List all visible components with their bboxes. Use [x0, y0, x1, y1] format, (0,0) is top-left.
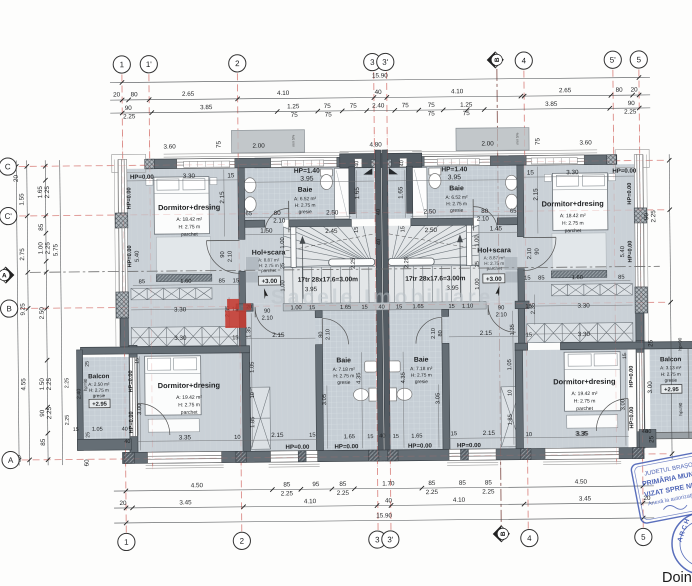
svg-text:9.25: 9.25 — [20, 303, 27, 316]
svg-text:40: 40 — [399, 160, 405, 166]
svg-text:5: 5 — [641, 533, 646, 542]
svg-text:15: 15 — [451, 431, 458, 437]
svg-text:40: 40 — [124, 439, 130, 445]
svg-text:H: 2.75 m: H: 2.75 m — [333, 373, 354, 379]
svg-text:80: 80 — [616, 87, 624, 94]
svg-text:5.40: 5.40 — [620, 246, 626, 257]
svg-text:H: 2.75 m: H: 2.75 m — [178, 402, 200, 408]
svg-text:2.50: 2.50 — [425, 227, 438, 234]
svg-text:1.35: 1.35 — [246, 327, 252, 338]
svg-text:2.25: 2.25 — [46, 407, 53, 420]
svg-text:HP=0.00: HP=0.00 — [629, 407, 635, 429]
svg-text:90: 90 — [264, 309, 271, 315]
svg-text:80: 80 — [438, 330, 444, 336]
svg-text:HP=0.00: HP=0.00 — [126, 187, 132, 209]
svg-text:90: 90 — [498, 305, 505, 311]
svg-text:HP=0.00: HP=0.00 — [408, 443, 433, 450]
svg-text:75: 75 — [216, 141, 223, 149]
svg-text:Balcon: Balcon — [660, 356, 681, 363]
svg-text:HP=0.00: HP=0.00 — [628, 241, 634, 263]
svg-text:Baie: Baie — [414, 357, 429, 364]
svg-text:80: 80 — [481, 208, 489, 215]
svg-text:hp=90: hp=90 — [677, 337, 682, 350]
svg-text:3.45: 3.45 — [579, 495, 592, 502]
svg-text:40: 40 — [122, 426, 128, 432]
svg-text:5': 5' — [610, 56, 617, 65]
svg-text:A: 7.18 m²: A: 7.18 m² — [410, 366, 433, 372]
svg-text:40: 40 — [642, 429, 648, 435]
svg-text:2: 2 — [240, 537, 245, 546]
svg-text:25: 25 — [475, 261, 481, 267]
svg-text:C': C' — [5, 212, 13, 221]
svg-text:75: 75 — [402, 102, 410, 109]
svg-text:15: 15 — [227, 172, 235, 179]
svg-text:1.55: 1.55 — [19, 193, 26, 206]
svg-text:2.15: 2.15 — [532, 188, 539, 201]
svg-text:17tr 28x17.6=3.00m: 17tr 28x17.6=3.00m — [298, 276, 359, 284]
svg-text:4: 4 — [527, 534, 532, 543]
svg-text:85: 85 — [618, 275, 625, 281]
svg-text:90: 90 — [628, 100, 636, 107]
svg-text:2.25: 2.25 — [404, 257, 410, 268]
svg-text:H: 2.75 m: H: 2.75 m — [411, 373, 432, 379]
svg-text:40: 40 — [376, 209, 382, 215]
svg-text:Hol+scara: Hol+scara — [252, 249, 286, 256]
svg-text:40: 40 — [354, 161, 360, 167]
svg-text:HP=0.00: HP=0.00 — [130, 174, 155, 181]
svg-text:3': 3' — [387, 535, 394, 544]
svg-text:2.25: 2.25 — [64, 378, 70, 389]
svg-text:90: 90 — [643, 212, 650, 220]
svg-text:2.10: 2.10 — [477, 215, 490, 222]
svg-text:15: 15 — [309, 433, 316, 439]
svg-text:H: 2.75 m: H: 2.75 m — [574, 398, 596, 404]
svg-text:3.05: 3.05 — [322, 394, 328, 405]
svg-text:3: 3 — [375, 535, 380, 544]
svg-text:C: C — [5, 162, 11, 171]
svg-text:90: 90 — [39, 409, 46, 417]
svg-text:3.30: 3.30 — [174, 306, 187, 313]
svg-text:4.10: 4.10 — [304, 498, 317, 505]
svg-text:3.60: 3.60 — [163, 143, 176, 150]
svg-text:1.60: 1.60 — [572, 275, 583, 281]
svg-text:A: 8.87 m²: A: 8.87 m² — [484, 255, 506, 260]
svg-text:H: 2.75 m: H: 2.75 m — [661, 372, 681, 377]
svg-text:2.25: 2.25 — [46, 378, 53, 391]
svg-text:5.75: 5.75 — [53, 243, 60, 256]
svg-text:2.45: 2.45 — [325, 228, 338, 235]
svg-text:H: 2.75 m: H: 2.75 m — [178, 224, 200, 230]
svg-text:H: 2.75 m: H: 2.75 m — [89, 388, 109, 393]
svg-text:15: 15 — [524, 276, 531, 282]
svg-text:2.50: 2.50 — [424, 208, 437, 215]
svg-text:10: 10 — [250, 392, 256, 398]
svg-text:parchet: parchet — [181, 232, 198, 238]
svg-text:85: 85 — [38, 223, 45, 231]
svg-text:40: 40 — [376, 239, 382, 245]
svg-text:hp=90: hp=90 — [83, 378, 88, 391]
svg-text:Sacele Imobiliare: Sacele Imobiliare — [271, 286, 494, 309]
svg-text:2.25: 2.25 — [351, 258, 357, 269]
svg-text:gresie: gresie — [450, 208, 463, 214]
svg-text:HP=0.00: HP=0.00 — [128, 370, 134, 392]
svg-text:2.25: 2.25 — [650, 210, 657, 223]
svg-text:20: 20 — [113, 91, 121, 98]
svg-text:15: 15 — [622, 353, 628, 359]
svg-text:Baie: Baie — [449, 185, 464, 192]
svg-text:2.25: 2.25 — [44, 186, 51, 199]
svg-text:65: 65 — [245, 211, 252, 217]
svg-text:2.25: 2.25 — [123, 113, 136, 120]
svg-text:1.85: 1.85 — [508, 414, 514, 425]
svg-text:HP=0.00: HP=0.00 — [334, 443, 359, 450]
svg-text:gresie: gresie — [93, 393, 106, 398]
svg-text:1: 1 — [120, 60, 125, 69]
svg-text:90: 90 — [220, 251, 226, 258]
svg-text:1.05: 1.05 — [507, 359, 513, 370]
svg-text:17tr 28x17.6=3.00m: 17tr 28x17.6=3.00m — [405, 275, 466, 283]
svg-text:2.40: 2.40 — [76, 389, 82, 400]
svg-text:15: 15 — [526, 333, 533, 339]
svg-text:3.00: 3.00 — [647, 381, 654, 394]
svg-text:parchet: parchet — [261, 268, 277, 273]
svg-text:15: 15 — [367, 434, 373, 440]
svg-text:4: 4 — [522, 56, 527, 65]
svg-text:25: 25 — [280, 263, 286, 269]
svg-text:HP=1.40: HP=1.40 — [294, 168, 320, 175]
svg-text:4.35: 4.35 — [356, 373, 362, 384]
svg-text:40: 40 — [379, 433, 385, 439]
svg-text:15: 15 — [232, 335, 239, 341]
svg-text:H: 2.75 m: H: 2.75 m — [562, 221, 584, 227]
svg-text:15: 15 — [527, 170, 535, 177]
svg-text:3.30: 3.30 — [566, 169, 579, 176]
svg-text:A: 18.42 m²: A: 18.42 m² — [176, 217, 202, 223]
svg-text:85: 85 — [538, 275, 545, 281]
svg-text:2.25: 2.25 — [426, 489, 439, 496]
svg-text:Hol+scara: Hol+scara — [477, 247, 511, 254]
svg-text:parchet: parchet — [576, 406, 593, 412]
svg-text:gresie: gresie — [337, 380, 350, 386]
svg-text:75: 75 — [324, 103, 332, 110]
svg-text:85: 85 — [283, 481, 291, 488]
svg-text:2.10: 2.10 — [527, 248, 533, 259]
svg-text:2.10: 2.10 — [228, 251, 234, 262]
svg-text:2.15: 2.15 — [272, 332, 285, 339]
svg-text:15.90: 15.90 — [376, 512, 392, 519]
svg-text:2.65: 2.65 — [182, 91, 195, 98]
svg-text:1.00: 1.00 — [474, 235, 480, 246]
svg-text:3.30: 3.30 — [577, 302, 590, 309]
svg-text:3.30: 3.30 — [183, 173, 196, 180]
svg-text:3.00: 3.00 — [137, 404, 143, 415]
svg-text:3.30: 3.30 — [578, 331, 591, 338]
svg-text:4.10: 4.10 — [277, 90, 290, 97]
svg-text:2.75: 2.75 — [19, 248, 26, 261]
svg-text:15: 15 — [400, 226, 406, 232]
svg-text:2.15: 2.15 — [480, 330, 493, 337]
svg-text:HP=0.00: HP=0.00 — [285, 444, 310, 451]
svg-text:3.30: 3.30 — [174, 335, 187, 342]
svg-text:+2.95: +2.95 — [92, 402, 108, 408]
svg-text:Baie: Baie — [298, 187, 313, 194]
svg-text:H: 2.75 m: H: 2.75 m — [295, 203, 316, 209]
svg-text:A: 7.18 m²: A: 7.18 m² — [333, 367, 356, 373]
svg-text:3.85: 3.85 — [200, 104, 213, 111]
svg-text:60: 60 — [84, 459, 91, 467]
svg-text:3.85: 3.85 — [545, 101, 558, 108]
svg-text:20: 20 — [13, 174, 20, 182]
svg-text:2.15: 2.15 — [271, 432, 284, 439]
svg-text:3.05: 3.05 — [435, 393, 441, 404]
svg-text:25: 25 — [85, 432, 91, 438]
svg-text:1.50: 1.50 — [260, 228, 273, 235]
svg-text:A: A — [2, 272, 7, 279]
svg-text:3': 3' — [382, 58, 389, 67]
svg-text:parchet: parchet — [181, 410, 198, 416]
svg-text:75: 75 — [463, 110, 471, 117]
svg-text:85: 85 — [40, 438, 47, 446]
svg-text:2.10: 2.10 — [325, 329, 331, 340]
svg-text:3.45: 3.45 — [179, 499, 192, 506]
svg-text:3.00: 3.00 — [621, 399, 627, 410]
svg-text:1.25: 1.25 — [287, 103, 300, 110]
svg-text:85: 85 — [428, 480, 436, 487]
svg-text:95: 95 — [312, 481, 320, 488]
svg-text:min 5%: min 5% — [291, 134, 295, 147]
svg-text:1.65: 1.65 — [344, 434, 355, 440]
svg-text:hp=90: hp=90 — [678, 402, 683, 415]
svg-text:4.80: 4.80 — [369, 141, 382, 148]
svg-text:85: 85 — [485, 479, 493, 486]
svg-text:5.40: 5.40 — [135, 251, 141, 262]
svg-text:1: 1 — [124, 538, 129, 547]
svg-text:A: A — [8, 456, 14, 465]
svg-text:B: B — [494, 57, 501, 62]
svg-text:10: 10 — [507, 390, 513, 396]
svg-text:2.25: 2.25 — [65, 415, 71, 426]
svg-text:4.10: 4.10 — [453, 497, 466, 504]
svg-text:parchet: parchet — [487, 266, 503, 271]
svg-text:15: 15 — [354, 227, 360, 233]
svg-text:2.00: 2.00 — [481, 140, 494, 147]
svg-text:75: 75 — [535, 137, 542, 145]
svg-text:2.00: 2.00 — [252, 143, 265, 150]
svg-text:2.10: 2.10 — [273, 217, 286, 224]
svg-text:4.55: 4.55 — [20, 378, 27, 391]
svg-text:1.00: 1.00 — [280, 237, 286, 248]
svg-text:65: 65 — [510, 209, 517, 215]
svg-text:85: 85 — [219, 278, 226, 284]
svg-text:+2.95: +2.95 — [664, 387, 680, 393]
svg-text:min 5%: min 5% — [515, 132, 519, 145]
svg-text:A: 18.42 m²: A: 18.42 m² — [560, 213, 586, 219]
svg-text:75: 75 — [350, 103, 358, 110]
svg-text:15: 15 — [135, 358, 141, 364]
svg-text:Baie: Baie — [336, 357, 351, 364]
svg-text:1.05: 1.05 — [250, 362, 256, 373]
svg-text:2.25: 2.25 — [44, 242, 51, 255]
svg-text:10: 10 — [234, 435, 241, 441]
svg-text:1.45: 1.45 — [490, 225, 503, 232]
svg-text:2.10: 2.10 — [496, 312, 507, 318]
svg-text:80: 80 — [131, 91, 139, 98]
svg-text:40: 40 — [385, 497, 393, 504]
svg-text:15: 15 — [233, 278, 240, 284]
svg-text:40: 40 — [375, 89, 383, 96]
svg-text:Dormitor+dresing: Dormitor+dresing — [158, 203, 221, 213]
svg-text:25: 25 — [648, 435, 655, 443]
svg-text:85: 85 — [139, 279, 146, 285]
svg-text:A: 2.50 m²: A: 2.50 m² — [88, 382, 110, 387]
svg-text:2.25: 2.25 — [624, 109, 637, 116]
svg-text:2.25: 2.25 — [482, 488, 495, 495]
svg-text:HP=1.40: HP=1.40 — [441, 166, 467, 173]
svg-text:5: 5 — [637, 55, 642, 64]
svg-text:75: 75 — [428, 110, 436, 117]
svg-text:1': 1' — [146, 60, 153, 69]
svg-text:4.10: 4.10 — [451, 88, 464, 95]
svg-text:2.50: 2.50 — [326, 209, 339, 216]
svg-text:3.95: 3.95 — [448, 174, 462, 181]
svg-text:75: 75 — [428, 102, 436, 109]
svg-text:4.35: 4.35 — [401, 372, 407, 383]
svg-text:3.35: 3.35 — [179, 434, 192, 441]
svg-text:80: 80 — [274, 210, 282, 217]
svg-text:Doina: Doina — [662, 570, 692, 586]
svg-text:A: 3.13 m²: A: 3.13 m² — [660, 365, 682, 370]
svg-text:25: 25 — [85, 361, 91, 367]
svg-text:3.35: 3.35 — [576, 431, 589, 438]
svg-text:HP=0.00: HP=0.00 — [629, 366, 635, 388]
svg-text:2.10: 2.10 — [431, 328, 437, 339]
svg-text:B: B — [500, 531, 507, 536]
svg-text:HP=0.00: HP=0.00 — [612, 168, 637, 175]
svg-text:1.35: 1.35 — [510, 324, 516, 335]
svg-text:Dormitor+dresing: Dormitor+dresing — [158, 381, 221, 391]
svg-text:3: 3 — [370, 58, 375, 67]
svg-text:25: 25 — [647, 339, 654, 347]
svg-text:15.90: 15.90 — [372, 72, 388, 79]
svg-text:A: 19.42 m²: A: 19.42 m² — [572, 391, 598, 397]
svg-text:+3.00: +3.00 — [486, 276, 502, 283]
svg-text:gresie: gresie — [415, 379, 428, 385]
svg-text:gresie: gresie — [665, 378, 678, 383]
svg-text:2.35: 2.35 — [531, 303, 537, 314]
svg-text:HP=0.00: HP=0.00 — [627, 183, 633, 205]
svg-text:2: 2 — [235, 59, 240, 68]
svg-text:80: 80 — [318, 331, 324, 337]
svg-text:Dormitor+dresing: Dormitor+dresing — [553, 377, 616, 387]
svg-text:1.05: 1.05 — [92, 427, 103, 433]
svg-text:2.65: 2.65 — [559, 87, 572, 94]
svg-text:90: 90 — [125, 105, 133, 112]
svg-text:2.25: 2.25 — [281, 490, 294, 497]
svg-text:1.65: 1.65 — [397, 186, 404, 199]
svg-text:15: 15 — [393, 434, 399, 440]
svg-text:10: 10 — [526, 432, 533, 438]
svg-text:H: 2.75 m: H: 2.75 m — [446, 201, 467, 207]
svg-text:15: 15 — [73, 427, 79, 433]
svg-text:4.50: 4.50 — [575, 479, 588, 486]
svg-text:75: 75 — [325, 111, 333, 118]
svg-text:1.60: 1.60 — [180, 279, 191, 285]
svg-text:1.25: 1.25 — [460, 102, 473, 109]
svg-text:+3.00: +3.00 — [262, 278, 278, 285]
svg-text:75: 75 — [291, 112, 299, 119]
svg-text:3.60: 3.60 — [579, 139, 592, 146]
svg-text:1.70: 1.70 — [382, 480, 395, 487]
svg-text:20: 20 — [631, 87, 639, 94]
svg-text:2.10: 2.10 — [262, 316, 273, 322]
svg-text:A: 19.42 m²: A: 19.42 m² — [176, 395, 202, 401]
svg-text:Dormitor+dresing: Dormitor+dresing — [542, 199, 605, 209]
svg-text:2.25: 2.25 — [337, 490, 350, 497]
svg-text:HP=0.00: HP=0.00 — [129, 411, 135, 433]
svg-text:HP=0.00: HP=0.00 — [457, 442, 482, 449]
svg-text:parchet: parchet — [565, 228, 582, 234]
svg-text:2.15: 2.15 — [483, 430, 496, 437]
svg-text:2.40: 2.40 — [372, 102, 385, 109]
svg-text:A: 8.87 m²: A: 8.87 m² — [258, 257, 280, 262]
svg-text:20: 20 — [119, 500, 127, 507]
svg-text:1.65: 1.65 — [354, 187, 361, 200]
svg-text:B: B — [6, 304, 11, 313]
svg-text:HP=0.00: HP=0.00 — [127, 245, 133, 267]
svg-text:90: 90 — [535, 248, 541, 255]
svg-text:4.50: 4.50 — [191, 482, 204, 489]
svg-text:A: 6.52 m²: A: 6.52 m² — [445, 195, 468, 201]
svg-text:A: 6.52 m²: A: 6.52 m² — [294, 196, 317, 202]
svg-text:gresie: gresie — [299, 209, 312, 215]
svg-text:1.85: 1.85 — [250, 417, 256, 428]
svg-text:3.95: 3.95 — [300, 176, 314, 183]
svg-text:85: 85 — [459, 480, 467, 487]
svg-text:Balcon: Balcon — [88, 373, 109, 380]
svg-text:85: 85 — [339, 481, 347, 488]
svg-text:1.65: 1.65 — [411, 434, 422, 440]
svg-text:2.50: 2.50 — [39, 307, 46, 320]
